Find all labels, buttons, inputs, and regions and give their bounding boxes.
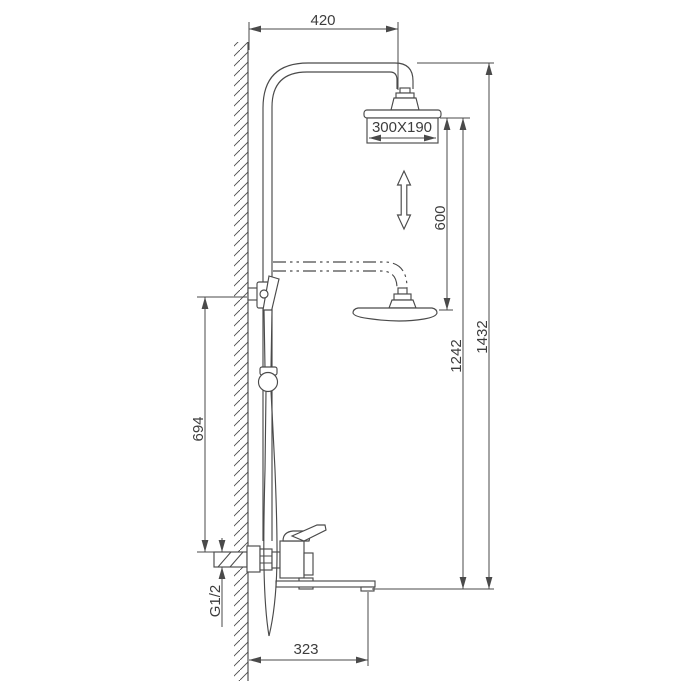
- lowered-connector-stem: [398, 288, 407, 294]
- swivel-arm-lowered-position: [273, 262, 407, 288]
- mixer-body: [280, 541, 304, 578]
- connection-hex-nut: [260, 549, 272, 570]
- dimension-spout-reach: 323: [249, 592, 368, 666]
- dim-label-694: 694: [190, 416, 207, 441]
- dim-label-420: 420: [310, 12, 335, 29]
- wall-hatching: [234, 42, 248, 681]
- dimension-adjust-range: 600: [432, 118, 470, 310]
- overhead-size-label: 300X190: [372, 119, 432, 136]
- shower-hose: [264, 391, 277, 636]
- hose-left-line: [264, 391, 269, 636]
- holder-screw: [260, 290, 268, 298]
- lowered-connector-cone: [389, 300, 416, 308]
- head-top-flange: [364, 110, 441, 118]
- dim-label-1242: 1242: [448, 339, 465, 372]
- head-connector-nut: [396, 93, 414, 98]
- dimension-head-to-spout: 1242: [448, 118, 465, 589]
- height-adjust-arrow: [398, 171, 411, 229]
- hand-shower-grip: [264, 310, 272, 368]
- hose-right-line: [269, 391, 277, 636]
- slider-ball: [259, 373, 278, 392]
- lowered-connector-nut: [394, 294, 411, 300]
- head-connector-stem: [400, 88, 410, 93]
- wall-inlet-nipple: [214, 552, 247, 567]
- arm-phantom-bottom-line: [273, 271, 397, 288]
- lowered-head-profile: [353, 308, 437, 321]
- dim-label-323: 323: [293, 641, 318, 658]
- dimension-inlet-thread: G1/2: [207, 538, 224, 627]
- escutcheon: [247, 546, 260, 572]
- head-connector-cone: [391, 98, 419, 110]
- overhead-shower-lowered: [353, 288, 437, 321]
- spout: [276, 581, 375, 587]
- arm-phantom-top-line: [273, 262, 407, 288]
- overhead-shower-head: 300X190: [364, 88, 441, 143]
- wall: [234, 42, 248, 681]
- dim-label-1432: 1432: [474, 320, 491, 353]
- dim-label-g12: G1/2: [207, 585, 224, 618]
- dim-label-600: 600: [432, 205, 449, 230]
- shower-system-dimension-drawing: 300X190: [0, 0, 700, 700]
- mixer-body-step: [304, 553, 313, 575]
- connection-adapter: [272, 552, 280, 568]
